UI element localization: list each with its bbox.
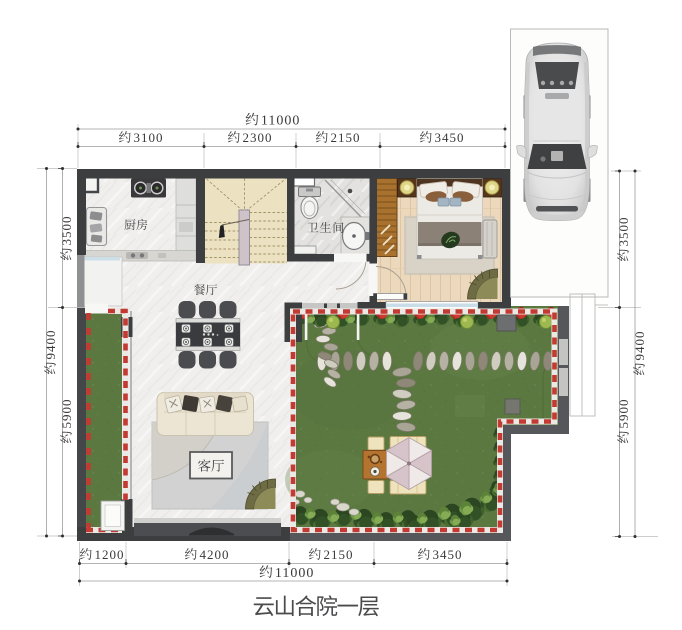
svg-text:5900: 5900 xyxy=(616,399,631,429)
svg-text:3450: 3450 xyxy=(435,130,465,145)
svg-text:1200: 1200 xyxy=(95,547,125,562)
svg-text:3500: 3500 xyxy=(616,217,631,247)
svg-text:11000: 11000 xyxy=(261,114,300,129)
svg-text:9400: 9400 xyxy=(632,331,647,361)
svg-text:3450: 3450 xyxy=(433,547,463,562)
svg-text:11000: 11000 xyxy=(275,566,314,581)
svg-text:9400: 9400 xyxy=(43,330,58,360)
svg-text:5900: 5900 xyxy=(59,399,74,429)
svg-text:3500: 3500 xyxy=(59,216,74,246)
svg-text:4200: 4200 xyxy=(200,547,230,562)
svg-text:2150: 2150 xyxy=(324,547,354,562)
svg-text:2300: 2300 xyxy=(243,130,273,145)
svg-text:2150: 2150 xyxy=(331,130,361,145)
svg-text:3100: 3100 xyxy=(134,130,164,145)
